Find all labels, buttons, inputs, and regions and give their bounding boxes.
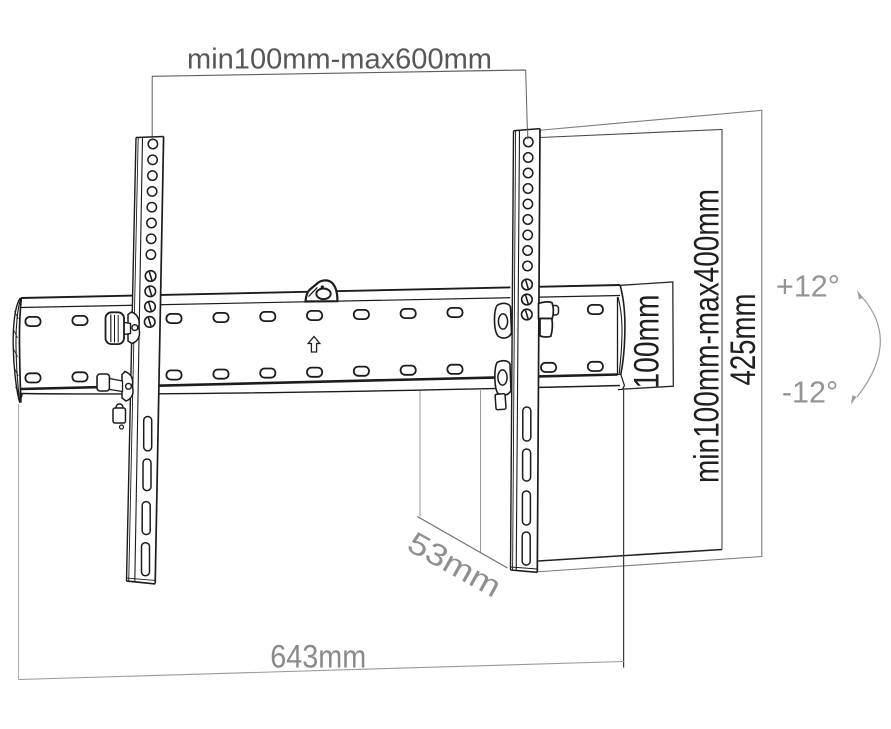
svg-text:-12°: -12° xyxy=(782,376,838,410)
svg-text:+12°: +12° xyxy=(776,270,840,304)
svg-text:100mm: 100mm xyxy=(628,295,667,389)
svg-text:min100mm-max600mm: min100mm-max600mm xyxy=(187,43,492,75)
svg-text:min100mm-max400mm: min100mm-max400mm xyxy=(687,189,726,483)
svg-text:425mm: 425mm xyxy=(724,294,763,386)
svg-text:643mm: 643mm xyxy=(270,639,366,675)
